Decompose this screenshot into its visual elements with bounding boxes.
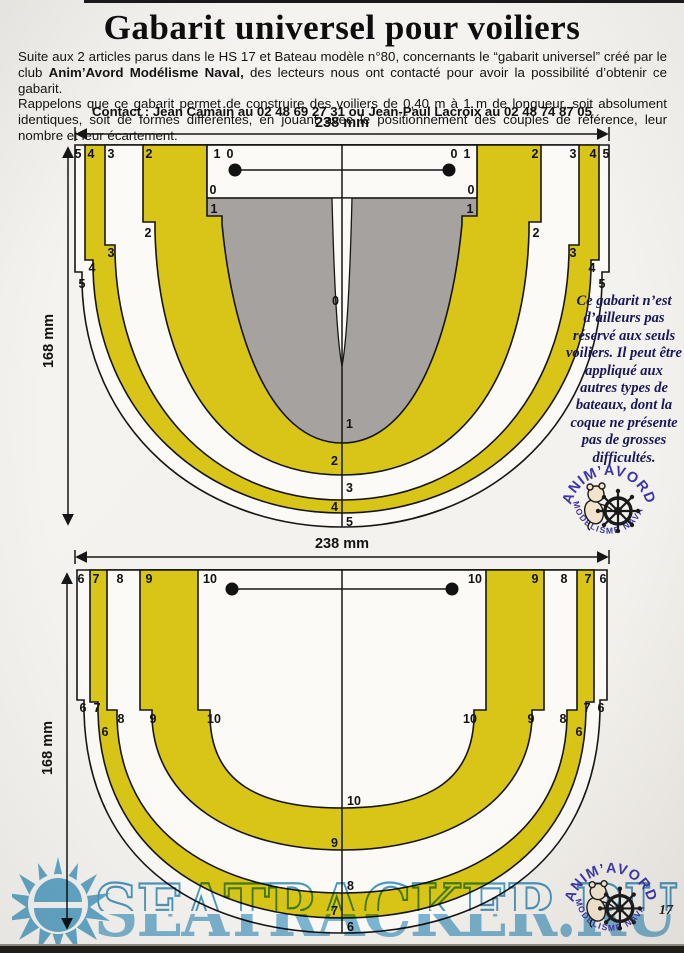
couple-number: 3 [570,147,577,161]
club-logo: ANIM’AVORD MODELISME NAVAL [556,456,662,556]
couple-number: 0 [468,183,475,197]
couple-number: 8 [118,712,125,726]
couple-number: 2 [331,454,338,468]
dimension-width-top: 238 mm [75,115,609,141]
pivot-dot-left-top [229,164,242,177]
ship-wheel-icon [596,489,640,533]
couple-number: 9 [532,572,539,586]
template-diagram-top: 238 mm 168 mm 5 4 3 2 1 0 0 1 2 3 [41,115,610,529]
couple-number: 10 [468,572,482,586]
couple-number: 4 [88,147,95,161]
couple-number: 9 [146,572,153,586]
scan-edge-bottom [0,944,684,953]
couple-number: 10 [203,572,217,586]
page-number: 17 [659,903,673,919]
couple-number: 7 [584,701,591,715]
couple-number: 6 [80,701,87,715]
pivot-dot-right-bottom [446,583,459,596]
couple-number: 6 [102,725,109,739]
couple-number: 10 [463,712,477,726]
ship-wheel-icon [598,886,642,930]
couple-number: 2 [145,226,152,240]
couple-number: 0 [332,294,339,308]
dimension-width-bottom: 238 mm [75,536,609,564]
dimension-width-top-label: 238 mm [315,115,369,131]
couple-number: 2 [532,147,539,161]
couple-number: 5 [75,147,82,161]
couple-number: 9 [150,712,157,726]
pivot-dot-left-bottom [226,583,239,596]
couple-number: 6 [576,725,583,739]
pivot-dot-right-top [443,164,456,177]
couple-number: 2 [146,147,153,161]
dimension-height-top: 168 mm [41,148,68,524]
couple-number: 4 [590,147,597,161]
couple-number: 7 [93,572,100,586]
couple-number: 8 [561,572,568,586]
couple-number: 1 [346,417,353,431]
dimension-height-bottom-label: 168 mm [40,721,56,775]
couple-number: 1 [464,147,471,161]
couple-number: 5 [346,515,353,529]
couple-number: 1 [467,202,474,216]
couple-number: 3 [108,147,115,161]
couple-number: 2 [533,226,540,240]
dimension-height-top-label: 168 mm [41,314,57,368]
couple-number: 3 [346,481,353,495]
couple-number: 10 [347,794,361,808]
couple-number: 4 [89,261,96,275]
couple-number: 1 [211,202,218,216]
couple-number: 5 [599,277,606,291]
couple-number: 4 [589,261,596,275]
couple-number: 7 [585,572,592,586]
couple-number: 7 [94,701,101,715]
couple-number: 0 [227,147,234,161]
couple-number: 10 [207,712,221,726]
couple-number: 8 [560,712,567,726]
dimension-width-bottom-label: 238 mm [315,536,369,552]
couple-number: 4 [331,500,338,514]
couple-number: 0 [451,147,458,161]
couple-number: 1 [214,147,221,161]
couple-number: 5 [603,147,610,161]
couple-number: 8 [117,572,124,586]
couple-number: 9 [528,712,535,726]
side-note: Ce gabarit n’est d’ailleurs pas réservé … [566,293,682,467]
couple-number: 6 [598,701,605,715]
couple-number: 6 [78,572,85,586]
club-logo: ANIM’AVORD MODELISME NAVAL [558,854,664,953]
couple-number: 0 [210,183,217,197]
couple-number: 3 [108,246,115,260]
couple-number: 5 [79,277,86,291]
couple-number: 9 [331,836,338,850]
couple-number: 3 [570,246,577,260]
couple-number: 6 [600,572,607,586]
